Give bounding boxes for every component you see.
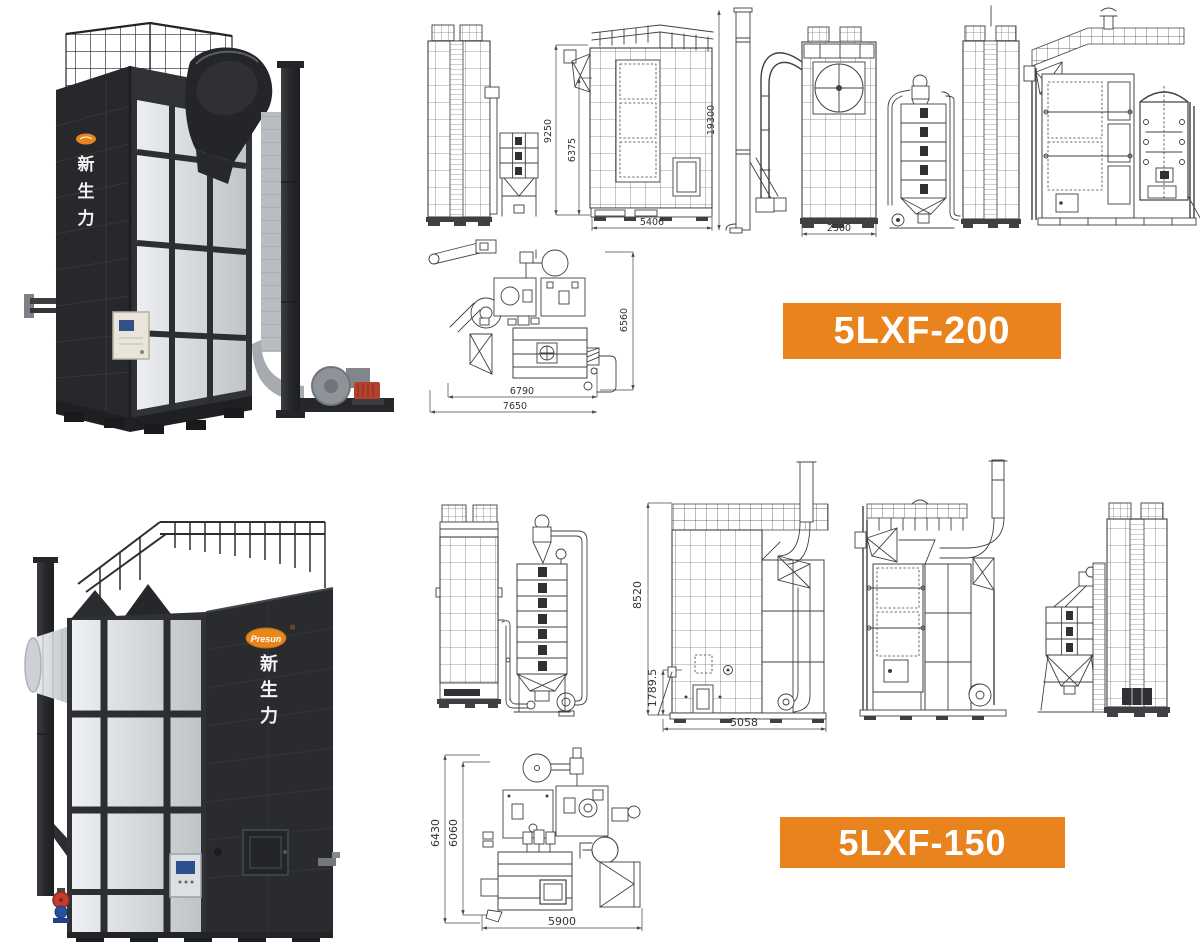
drawing-plan-view: 6560 6790 7650 [429, 240, 633, 412]
dim-plan-depth-inner: 6060 [447, 819, 460, 847]
drawing-tower-front-view [961, 6, 1021, 228]
dim-rear-width: 2500 [827, 223, 851, 234]
exhaust-funnel [185, 47, 272, 184]
drawing-side-view-dimensioned-150: 8520 1789.5 5 [631, 462, 828, 732]
dim-side-height: 8520 [631, 581, 644, 609]
catalog-page: 新 生 力 [0, 0, 1200, 946]
brand-name-vertical: 新 生 力 [78, 154, 95, 229]
intake-horn-duct [25, 626, 70, 704]
drawing-plan-view-150: 6430 6060 5900 [429, 748, 642, 931]
dim-plan-length-total: 7650 [503, 401, 527, 412]
dim-column-height: 6375 [567, 138, 578, 162]
product-photo-5lxf-200: 新 生 力 [0, 0, 420, 440]
brand-char-3: 力 [260, 706, 278, 727]
dim-exhaust-pipe-height: 19300 [706, 105, 717, 135]
brand-char-3: 力 [78, 208, 95, 229]
control-cabinet [113, 312, 149, 359]
product-photo-5lxf-150: Presun ® 新 生 力 [0, 492, 420, 942]
roof-railing [78, 522, 325, 598]
blower-fan-unit [300, 367, 394, 412]
drawing-section-view [1024, 8, 1200, 225]
technical-drawings-5lxf-200: 9250 6375 5406 19300 [420, 0, 1200, 460]
dim-plan-depth-total: 6430 [429, 819, 442, 847]
drawing-cyclone-unit-150 [514, 515, 587, 716]
brand-logo [76, 134, 96, 145]
drawing-dust-collector-view-150 [1038, 503, 1170, 717]
model-badge-5lxf-150: 5LXF-150 [780, 817, 1065, 868]
drawing-side-view-dimensioned: 9250 6375 5406 [543, 25, 713, 231]
drawing-front-view [426, 25, 538, 226]
control-cabinet [170, 854, 201, 897]
drawing-cyclone-unit [888, 75, 960, 228]
model-badge-text-150: 5LXF-150 [838, 822, 1006, 864]
dim-plan-length: 5900 [548, 915, 576, 928]
technical-drawings-5lxf-150: 8520 1789.5 5 [420, 460, 1200, 946]
dim-plan-depth: 6560 [619, 308, 630, 332]
dim-body-width: 5406 [640, 217, 664, 228]
base-skid [67, 932, 333, 942]
side-pipes [24, 294, 56, 318]
brand-char-2: 生 [260, 679, 278, 701]
drain-valve [53, 888, 69, 923]
drawing-section-view-150 [855, 460, 1007, 720]
dim-base-height: 1789.5 [646, 669, 659, 708]
registered-trademark-symbol: ® [290, 624, 296, 632]
brand-logo-text: Presun [251, 634, 282, 644]
drawing-rear-view: 2500 [756, 27, 878, 237]
brand-char-1: 新 [260, 653, 278, 675]
model-badge-text-200: 5LXF-200 [834, 310, 1011, 353]
model-badge-5lxf-200: 5LXF-200 [783, 303, 1061, 359]
dim-plan-length-inner: 6790 [510, 386, 534, 397]
brand-name-vertical: 新 生 力 [260, 653, 278, 727]
dim-body-width-150: 5058 [730, 716, 758, 729]
brand-char-1: 新 [78, 154, 95, 175]
dim-front-height: 9250 [543, 119, 554, 143]
brand-char-2: 生 [78, 181, 95, 202]
